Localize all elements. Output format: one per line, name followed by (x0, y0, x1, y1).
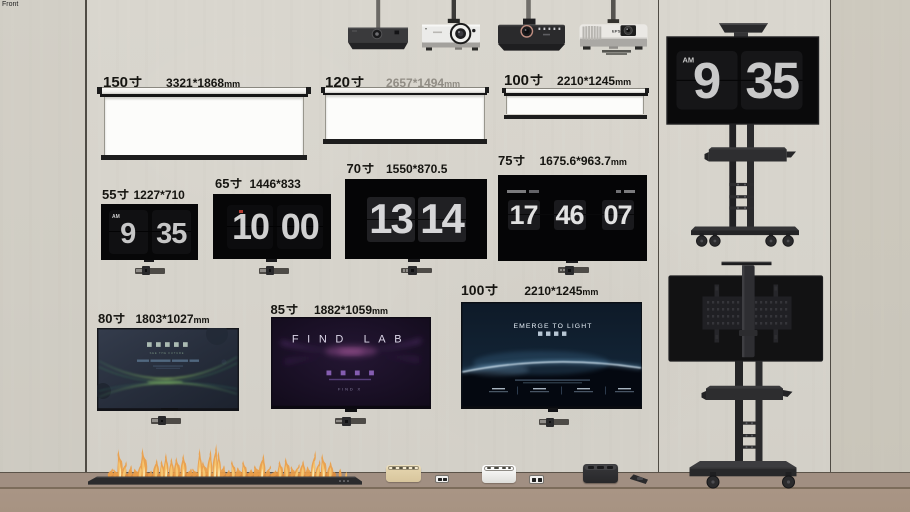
svg-text:EMERGE TO LIGHT: EMERGE TO LIGHT (513, 323, 592, 330)
svg-text:SEE THE FUTURE: SEE THE FUTURE (149, 350, 184, 354)
svg-text:FIND X: FIND X (338, 387, 362, 392)
svg-text:35: 35 (745, 52, 798, 109)
svg-text:FIND LAB: FIND LAB (291, 334, 409, 346)
svg-text:9: 9 (693, 52, 721, 109)
